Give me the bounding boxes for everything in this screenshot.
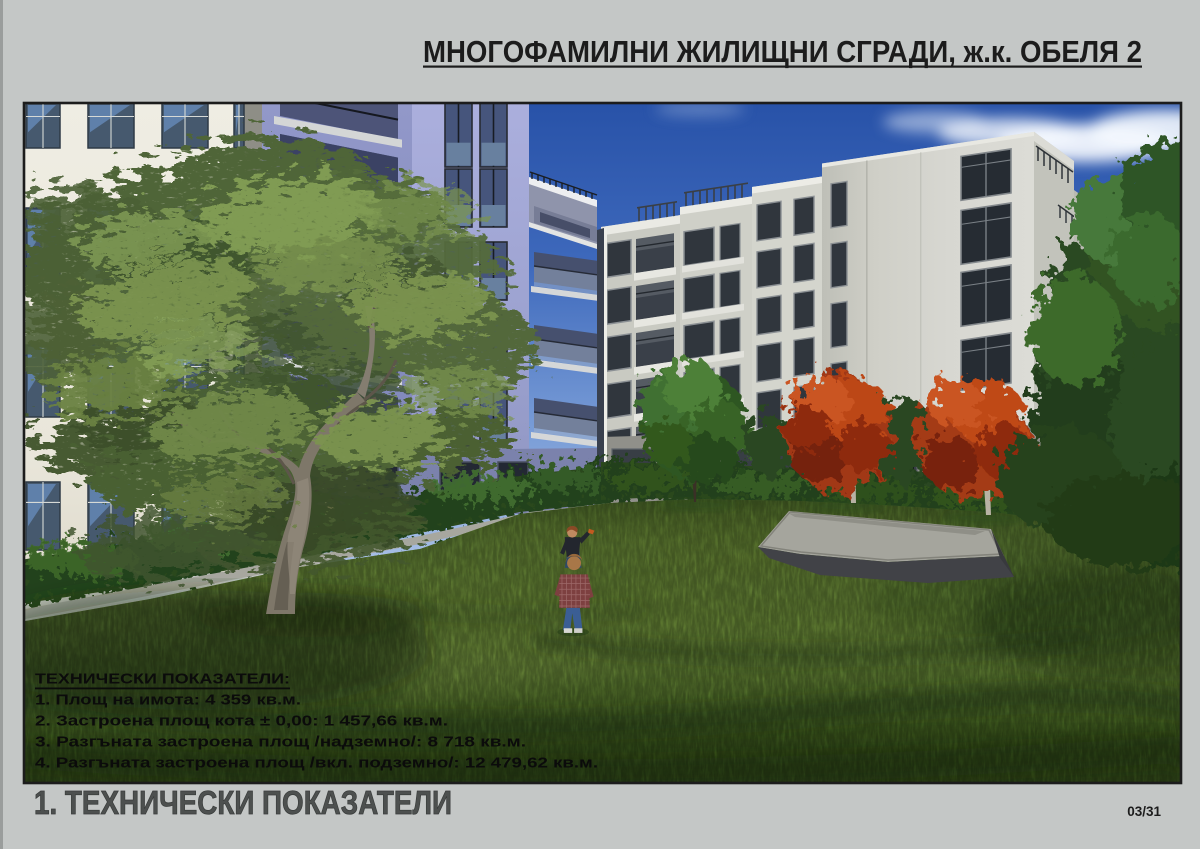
svg-text:1. Площ на имота: 4 359 кв.м.: 1. Площ на имота: 4 359 кв.м. (35, 692, 301, 709)
svg-text:2. Застроена площ кота ± 0,00:: 2. Застроена площ кота ± 0,00: 1 457,66 … (35, 713, 448, 730)
svg-text:ТЕХНИЧЕСКИ ПОКАЗАТЕЛИ:: ТЕХНИЧЕСКИ ПОКАЗАТЕЛИ: (35, 671, 290, 688)
svg-text:1. ТЕХНИЧЕСКИ ПОКАЗАТЕЛИ: 1. ТЕХНИЧЕСКИ ПОКАЗАТЕЛИ (34, 784, 452, 821)
svg-text:МНОГОФАМИЛНИ ЖИЛИЩНИ СГРАДИ, ж: МНОГОФАМИЛНИ ЖИЛИЩНИ СГРАДИ, ж.к. ОБЕЛЯ … (423, 34, 1142, 69)
svg-text:3. Разгъната застроена площ /: 3. Разгъната застроена площ /надземно/: … (35, 734, 526, 751)
svg-text:4. Разгъната застроена площ /в: 4. Разгъната застроена площ /вкл. подзем… (35, 755, 598, 772)
svg-text:03/31: 03/31 (1127, 804, 1161, 819)
